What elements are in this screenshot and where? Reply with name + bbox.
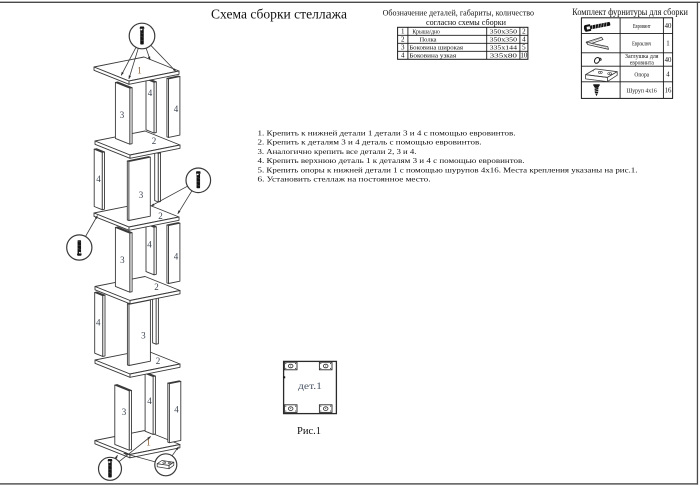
svg-text:10: 10 bbox=[520, 52, 528, 60]
svg-text:Рис.1: Рис.1 bbox=[297, 426, 321, 437]
svg-text:Шуруп 4х16: Шуруп 4х16 bbox=[627, 88, 658, 95]
svg-text:2: 2 bbox=[156, 356, 161, 366]
svg-text:4: 4 bbox=[174, 252, 179, 262]
svg-text:4: 4 bbox=[96, 318, 101, 328]
svg-text:Крыша/дно: Крыша/дно bbox=[412, 29, 440, 36]
svg-text:3: 3 bbox=[120, 110, 125, 120]
svg-text:3: 3 bbox=[141, 331, 146, 341]
svg-text:Комплект фурнитуры для сборки: Комплект фурнитуры для сборки bbox=[572, 7, 688, 17]
svg-text:3: 3 bbox=[401, 44, 405, 52]
svg-text:Схема сборки стеллажа: Схема сборки стеллажа bbox=[211, 6, 347, 21]
svg-text:4. Крепить верхнюю деталь 1 к: 4. Крепить верхнюю деталь 1 к деталям 3 … bbox=[258, 156, 525, 165]
svg-text:1: 1 bbox=[137, 66, 142, 76]
svg-text:1: 1 bbox=[401, 28, 405, 36]
svg-text:3. Аналогично крепить все дета: 3. Аналогично крепить все детали 2, 3 и … bbox=[258, 147, 417, 156]
svg-text:2: 2 bbox=[401, 36, 405, 44]
svg-text:4: 4 bbox=[147, 240, 152, 250]
svg-text:2: 2 bbox=[522, 28, 526, 36]
svg-text:4: 4 bbox=[174, 104, 179, 114]
svg-text:5: 5 bbox=[522, 44, 526, 52]
svg-text:согласно схемы сборки: согласно схемы сборки bbox=[426, 17, 506, 27]
svg-text:2. Крепить к деталям 3 и 4 дет: 2. Крепить к деталям 3 и 4 деталь с помо… bbox=[258, 138, 482, 147]
svg-text:1. Крепить к нижней детали 1 д: 1. Крепить к нижней детали 1 детали 3 и … bbox=[258, 128, 516, 137]
svg-text:3: 3 bbox=[139, 190, 144, 200]
svg-text:40: 40 bbox=[665, 57, 672, 64]
svg-text:Боковина узкая: Боковина узкая bbox=[409, 53, 456, 60]
svg-text:2: 2 bbox=[158, 211, 163, 221]
svg-text:4: 4 bbox=[96, 174, 101, 184]
svg-text:350х350: 350х350 bbox=[490, 37, 518, 44]
svg-text:3: 3 bbox=[120, 255, 125, 265]
svg-text:40: 40 bbox=[665, 23, 672, 30]
svg-text:дет.1: дет.1 bbox=[298, 382, 322, 392]
svg-text:4: 4 bbox=[401, 52, 405, 60]
svg-text:16: 16 bbox=[665, 88, 672, 95]
svg-text:Боковина широкая: Боковина широкая bbox=[409, 45, 463, 52]
svg-text:350х350: 350х350 bbox=[490, 29, 518, 36]
svg-text:4: 4 bbox=[148, 88, 153, 98]
svg-text:евровинта: евровинта bbox=[630, 60, 654, 67]
svg-text:335х144: 335х144 bbox=[490, 45, 518, 52]
svg-text:4: 4 bbox=[522, 36, 526, 44]
svg-text:6. Установить стеллаж на посто: 6. Установить стеллаж на постоянное мест… bbox=[258, 175, 431, 184]
svg-text:Евровинт: Евровинт bbox=[633, 23, 651, 30]
svg-text:335х80: 335х80 bbox=[490, 53, 518, 60]
svg-text:3: 3 bbox=[122, 407, 127, 417]
svg-text:4: 4 bbox=[666, 71, 670, 78]
svg-text:4: 4 bbox=[147, 396, 152, 406]
svg-text:5. Крепить опоры к нижней дета: 5. Крепить опоры к нижней детали 1 с пом… bbox=[258, 165, 638, 174]
svg-text:Опора: Опора bbox=[634, 71, 649, 78]
svg-text:1: 1 bbox=[666, 41, 669, 48]
svg-text:Евроключ: Евроключ bbox=[632, 41, 652, 48]
svg-text:Полка: Полка bbox=[420, 37, 437, 44]
svg-text:2: 2 bbox=[154, 282, 159, 292]
svg-text:4: 4 bbox=[174, 405, 179, 415]
svg-text:2: 2 bbox=[152, 136, 157, 146]
